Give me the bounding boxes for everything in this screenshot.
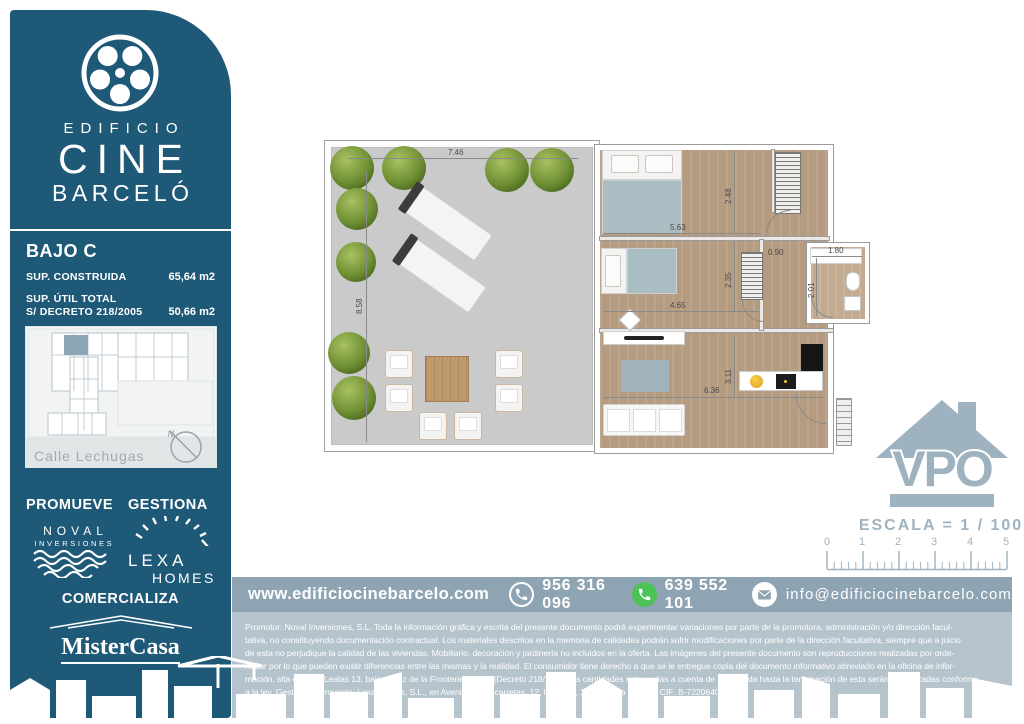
plant [332, 376, 376, 420]
lexa-logo-line1: LEXA [128, 551, 220, 571]
dim-line [734, 336, 735, 397]
ruler-tick-3: 3 [931, 536, 937, 548]
dim-line [603, 397, 823, 398]
compass-north-label: N [168, 429, 175, 439]
email-icon [752, 582, 777, 607]
dim-bed1-width: 5.63 [670, 223, 686, 232]
tv-sideboard [603, 331, 685, 345]
dim-bed1-height: 2.48 [724, 188, 733, 204]
sofa [603, 404, 685, 436]
dim-line [816, 258, 817, 316]
role-comercializa: COMERCIALIZA [10, 591, 231, 607]
role-gestiona: GESTIONA [128, 497, 208, 513]
phone-number[interactable]: 956 316 096 [542, 577, 607, 613]
ruler-tick-0: 0 [824, 536, 830, 548]
single-bed [601, 248, 677, 294]
legal-line: tativa, no constituyendo documentación c… [245, 634, 1002, 647]
cooktop [801, 344, 823, 371]
fruit-bowl [750, 375, 763, 388]
lexa-homes-logo: LEXA HOMES [128, 516, 220, 586]
sidebar: EDIFICIO CINE BARCELÓ BAJO C SUP. CONSTR… [10, 10, 231, 718]
brand-line-edificio: EDIFICIO [10, 120, 231, 137]
unit-title: BAJO C [26, 241, 97, 262]
outdoor-chair [495, 384, 523, 412]
surface-util-value: 50,66 m2 [169, 306, 215, 318]
plant [336, 188, 378, 230]
phone-icon [509, 582, 534, 607]
scale-label: ESCALA = 1 / 100 [845, 517, 1024, 535]
dim-line [734, 150, 735, 233]
ruler-tick-4: 4 [967, 536, 973, 548]
ruler-tick-2: 2 [895, 536, 901, 548]
plant [328, 332, 370, 374]
plant [485, 148, 529, 192]
plant [336, 242, 376, 282]
surface-built-label: SUP. CONSTRUIDA [26, 271, 127, 284]
dim-terrace-height: 8.58 [355, 298, 364, 314]
outdoor-chair [454, 412, 482, 440]
brochure-page: EDIFICIO CINE BARCELÓ BAJO C SUP. CONSTR… [0, 0, 1024, 724]
dim-line [348, 158, 578, 159]
dim-line [603, 311, 759, 312]
legal-line: Promotor: Noval Inversiones, S.L. Toda l… [245, 621, 1002, 634]
dim-bath-width: 1.80 [828, 246, 844, 255]
dim-line [734, 242, 735, 311]
role-promueve: PROMUEVE [26, 497, 113, 513]
dim-line [366, 170, 367, 442]
dim-terrace-width: 7.46 [448, 148, 464, 157]
whatsapp-number[interactable]: 639 552 101 [665, 577, 730, 613]
street-label: Calle Lechugas [34, 448, 145, 464]
surface-util-decree: S/ DECRETO 218/2005 [26, 306, 142, 319]
sink [844, 296, 861, 311]
site-plan-drawing [26, 327, 216, 467]
waves-icon [30, 550, 116, 578]
lexa-logo-line2: HOMES [152, 570, 220, 586]
floor-plan: 7.46 8.58 5.63 2.48 4.65 2.35 0.90 1.80 … [322, 136, 874, 458]
sun-rays-icon [128, 516, 220, 546]
outdoor-chair [385, 384, 413, 412]
outdoor-chair [419, 412, 447, 440]
double-bed [602, 150, 682, 234]
kitchen-counter [739, 371, 823, 391]
tv [624, 336, 664, 340]
entry-steps [836, 398, 852, 446]
plant [530, 148, 574, 192]
rug [621, 360, 669, 392]
whatsapp-icon [632, 582, 657, 607]
vpo-wordmark: VPO [892, 441, 992, 497]
ruler-tick-5: 5 [1003, 536, 1009, 548]
outdoor-chair [495, 350, 523, 378]
surface-util-label: SUP. ÚTIL TOTAL [26, 293, 117, 306]
dim-bath-height: 2.01 [807, 282, 816, 298]
city-skyline-silhouette [10, 656, 1014, 718]
divider-line [10, 229, 231, 231]
ruler-tick-1: 1 [859, 536, 865, 548]
dim-line [603, 233, 759, 234]
kitchen-sink [776, 374, 796, 389]
dim-bed2-width: 4.65 [670, 301, 686, 310]
toilet [846, 272, 860, 291]
surface-built-value: 65,64 m2 [169, 271, 215, 283]
email-address[interactable]: info@edificiocinebarcelo.com [786, 586, 1012, 603]
site-minimap: Calle Lechugas N [25, 326, 217, 468]
noval-inversiones-logo: NOVAL INVERSIONES [30, 524, 116, 583]
vpo-logo: VPO [872, 396, 1012, 512]
ruler-ticks [822, 549, 1012, 571]
wardrobe [775, 152, 801, 214]
scale-ruler: 0 1 2 3 4 5 [822, 536, 1012, 574]
wardrobe [741, 252, 763, 300]
website-link[interactable]: www.edificiocinebarcelo.com [248, 585, 489, 604]
brand-line-cine: CINE [10, 136, 231, 183]
dim-living-width: 6.36 [704, 386, 720, 395]
plant [330, 146, 374, 190]
crane-icon [178, 656, 262, 688]
noval-logo-line1: NOVAL [30, 524, 116, 538]
highlighted-unit [64, 335, 88, 355]
film-reel-icon [77, 30, 163, 116]
dim-line [812, 256, 862, 257]
dim-living-height: 3.11 [724, 369, 733, 384]
dim-hall-width: 0.90 [768, 248, 784, 257]
outdoor-table [425, 356, 469, 402]
wall [599, 236, 830, 241]
outdoor-chair [385, 350, 413, 378]
roof-lines-icon [46, 614, 196, 629]
brand-line-barcelo: BARCELÓ [10, 180, 231, 207]
contact-bar: www.edificiocinebarcelo.com 956 316 096 … [232, 577, 1012, 612]
noval-logo-line2: INVERSIONES [30, 539, 116, 548]
dim-bed2-height: 2.35 [724, 272, 733, 288]
